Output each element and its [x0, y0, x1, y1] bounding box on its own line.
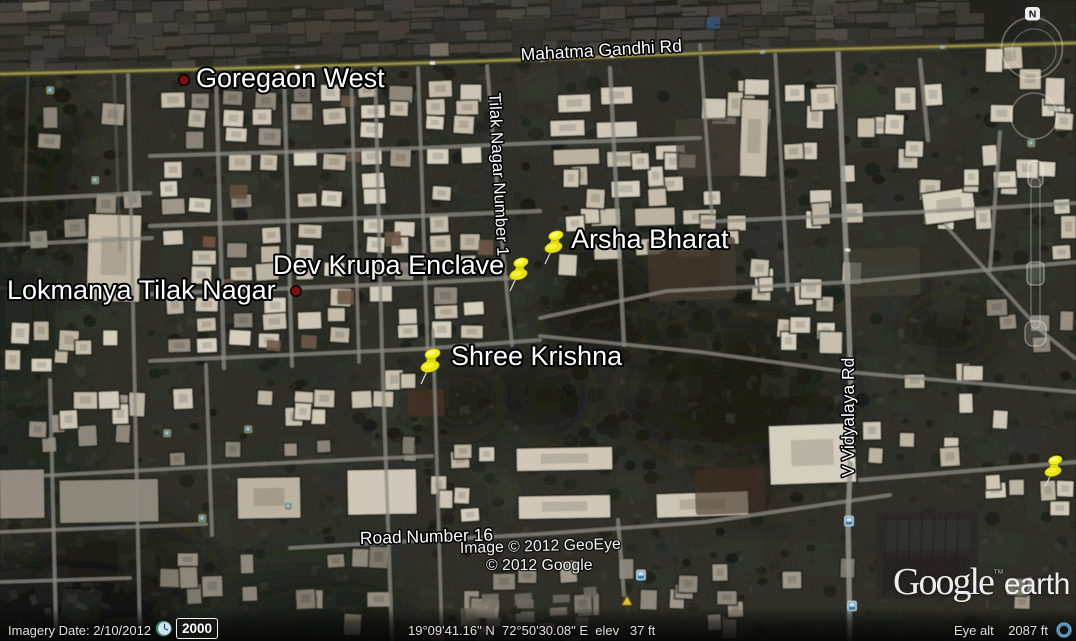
- svg-text:© 2012 Google: © 2012 Google: [486, 557, 593, 574]
- svg-text:Shree Krishna: Shree Krishna: [451, 341, 623, 371]
- svg-text:Dev Krupa Enclave: Dev Krupa Enclave: [273, 250, 504, 280]
- svg-text:Arsha Bharat: Arsha Bharat: [571, 224, 729, 254]
- svg-text:V Vidyalaya Rd: V Vidyalaya Rd: [838, 358, 858, 477]
- svg-text:Goregaon West: Goregaon West: [196, 63, 385, 93]
- svg-text:Lokmanya Tilak Nagar: Lokmanya Tilak Nagar: [7, 275, 276, 305]
